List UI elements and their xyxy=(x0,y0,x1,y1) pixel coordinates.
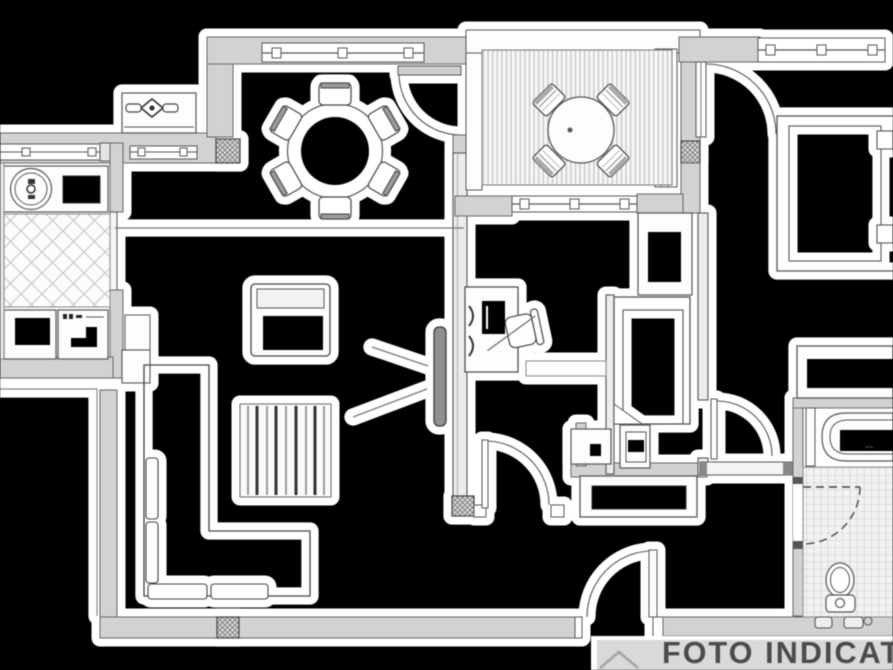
svg-text:FOTO INDICATIVA: FOTO INDICATIVA xyxy=(662,636,893,670)
